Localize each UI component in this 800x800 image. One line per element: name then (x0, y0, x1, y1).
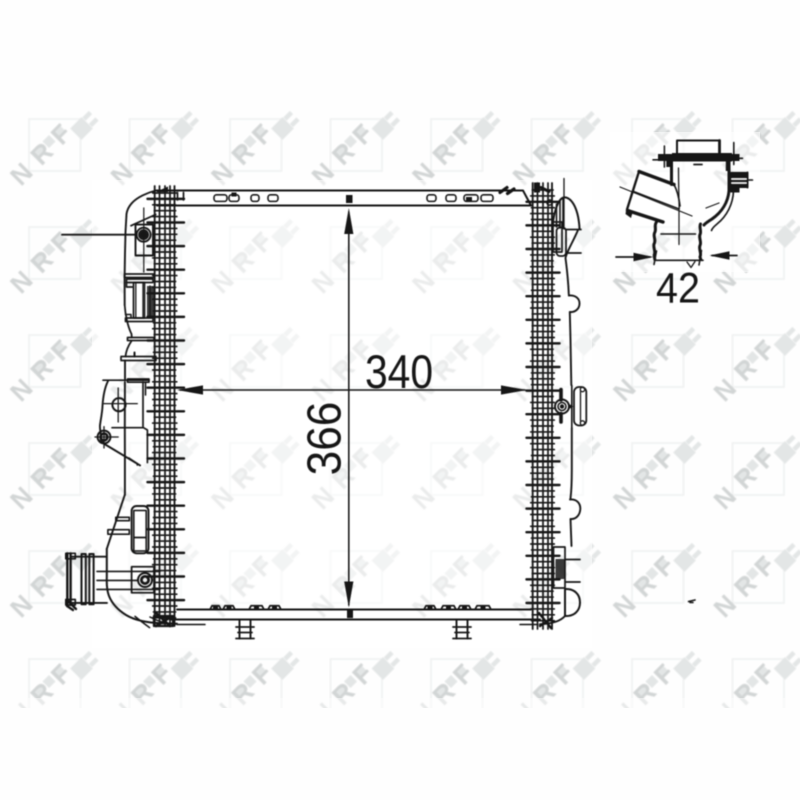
svg-text:42: 42 (656, 264, 700, 312)
svg-text:366: 366 (297, 402, 351, 476)
svg-text:340: 340 (365, 346, 433, 399)
